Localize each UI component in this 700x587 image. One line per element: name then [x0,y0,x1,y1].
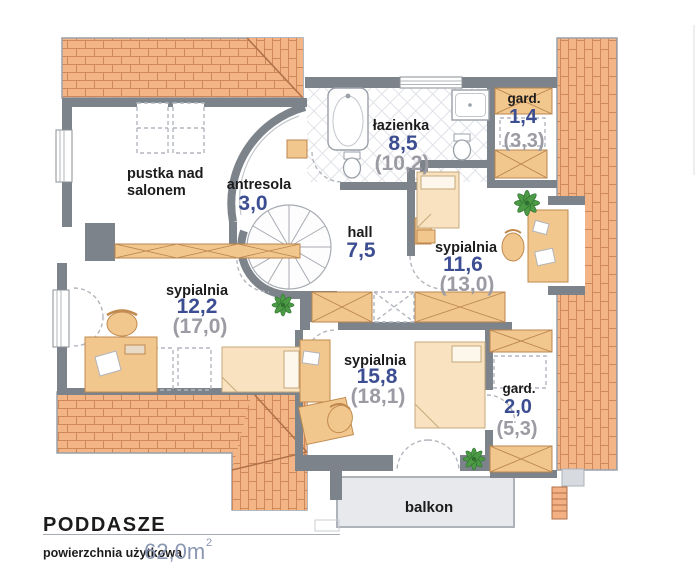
room-name: pustka nad [127,166,204,182]
room-gross-area: (17,0) [173,315,228,338]
room-label-sypialnia-left: sypialnia 12,2 (17,0) [166,283,229,338]
bed-sypialnia-bottom [415,342,485,428]
room-name: gard. [507,91,540,106]
room-gross-area: (5,3) [496,418,537,440]
room-label-sypialnia-right: sypialnia 11,6 (13,0) [435,240,498,296]
roof-top-left [62,38,303,98]
desk-sypialnia-right [528,210,568,282]
page-title: PODDASZE [43,514,166,536]
bathtub [328,88,368,150]
window-left-upper [56,130,72,182]
roof-ladder [552,487,567,519]
usable-area-value: 62,0m [144,539,205,564]
desk-sypialnia-left [85,337,157,392]
floor-plan-page: pustka nad salonem antresola 3,0 łazienk… [0,0,700,587]
wardrobe-gard-bottom-2 [490,446,552,472]
room-area: 2,0 [504,396,532,418]
window-top [400,77,462,88]
room-label-pustka: pustka nad salonem [127,166,204,199]
room-label-gard-bottom: gard. 2,0 (5,3) [496,381,537,440]
room-gross-area: (10,2) [375,152,430,175]
chair-sypialnia-left [107,311,137,337]
room-gross-area: (3,3) [503,130,544,152]
plant-icon [463,448,485,470]
wall-cabinet-stair [287,140,307,158]
door-sypialnia-right [410,256,443,289]
plant-icon [514,190,539,215]
floor-plan-drawing: pustka nad salonem antresola 3,0 łazienk… [0,0,700,587]
bed-sypialnia-right [417,172,459,228]
toilet [454,134,471,160]
plant-icon [272,294,294,316]
wardrobe-hall-right [415,292,505,322]
knee-wall-window-band [115,244,300,258]
footer-mark [315,520,339,531]
wardrobe-gard-bottom-1 [490,330,552,352]
wardrobe-hall-left [312,292,372,322]
room-name: gard. [502,381,535,396]
room-label-sypialnia-bottom: sypialnia 15,8 (18,1) [344,353,407,408]
shower [452,90,489,120]
storage-dashed-2 [178,348,211,390]
usable-area-exponent: 2 [206,537,212,549]
room-label-gard-top: gard. 1,4 (3,3) [503,91,544,152]
roof-bottom-left [57,392,307,510]
bed-sypialnia-left [222,347,302,392]
chair-sypialnia-right [502,230,524,261]
room-name: salonem [127,183,186,199]
footer: PODDASZE powierzchnia użytkowa 62,0m 2 [43,514,340,564]
room-label-hall: hall 7,5 [346,225,376,262]
room-gross-area: (13,0) [440,273,495,296]
room-label-balkon: balkon [405,499,453,516]
room-area: 3,0 [238,192,267,215]
room-area: 1,4 [509,106,538,128]
wardrobe-gard-top-2 [495,150,547,178]
chimney-step [562,469,584,486]
room-gross-area: (18,1) [351,385,406,408]
room-name: antresola [227,177,292,193]
balcony-french-door [397,440,459,471]
window-left-lower [53,290,69,347]
bidet [344,152,361,178]
nightstand-sypialnia-right [417,230,435,243]
room-area: 7,5 [346,239,376,262]
